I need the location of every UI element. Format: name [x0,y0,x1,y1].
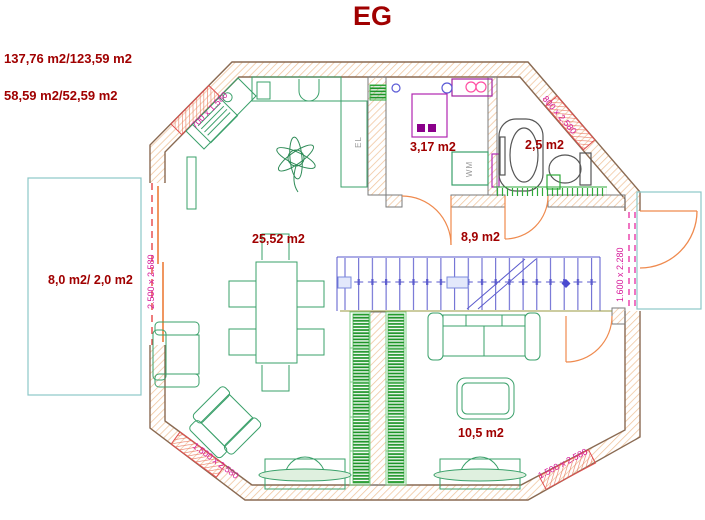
wall-hall-stub-2 [451,195,505,207]
area-annotation-2: 58,59 m2/52,59 m2 [4,88,117,103]
kitchen-sink-basin [299,79,319,101]
books-right [388,314,404,483]
sideboard-right [434,457,526,489]
chair [297,281,324,307]
lamp-icon [442,83,452,93]
area-annotation-1: 137,76 m2/123,59 m2 [4,51,132,66]
coffee-table [457,378,514,419]
dim-door-right: 1.600 x 2.280 [615,247,625,302]
floor-plan-page: EG 137,76 m2/123,59 m2 58,59 m2/52,59 m2… [0,0,705,520]
books-left [353,314,369,483]
toilet-bowl [549,155,581,183]
kitchen-counter-top [252,77,341,101]
terrace-right [637,192,701,309]
staircase [337,257,612,311]
tap-bar [500,137,505,175]
sink-bowl-icon [466,82,476,92]
wall-hall-stub-1 [386,195,402,207]
chair [229,281,256,307]
chair [297,329,324,355]
chair [262,365,289,391]
floor-grate [494,188,607,196]
wall-hall-stub-3 [548,195,625,207]
wall-shelf-spine [370,312,386,485]
dining-set [229,234,324,391]
room-label-wc: 2,5 m2 [525,138,564,152]
kitchen-cabinet-tall [187,157,196,209]
door-bathroom [402,196,451,245]
right-wall-opening [624,211,642,311]
leaf-icon [259,469,351,481]
room-label-living: 10,5 m2 [458,426,504,440]
bathroom [392,79,499,187]
stair-start-mark [338,277,351,288]
sink-bowl-icon [476,82,486,92]
floor-plan-drawing: EG 137,76 m2/123,59 m2 58,59 m2/52,59 m2… [0,0,705,520]
dining-table [256,262,297,363]
shower-control-icon [417,124,425,132]
leaf-icon [434,469,526,481]
door-wc [505,196,548,239]
sofa [428,313,540,360]
sideboard-left [259,457,351,489]
room-label-terrace-left: 8,0 m2/ 2,0 m2 [48,273,133,287]
chair [229,329,256,355]
duct [370,85,386,100]
page-title: EG [353,1,392,31]
dim-slide-door-left: 2.500 x 2.580 [146,254,156,309]
washing-machine-label: WM [465,161,474,177]
stair-landing-mark [447,277,468,288]
door-living [566,316,612,362]
wall-door-stub-right [612,308,625,324]
lamp-icon [392,84,400,92]
washbasin-bowl [510,128,538,182]
room-label-bathroom: 3,17 m2 [410,140,456,154]
washbasin [499,119,543,191]
shower-control-icon [428,124,436,132]
room-label-hallway: 8,9 m2 [461,230,500,244]
cooktop [257,82,270,99]
plant-icon [274,137,317,192]
kitchen-unit-label: EL [354,136,363,148]
room-label-kitchen-living: 25,52 m2 [252,232,305,246]
